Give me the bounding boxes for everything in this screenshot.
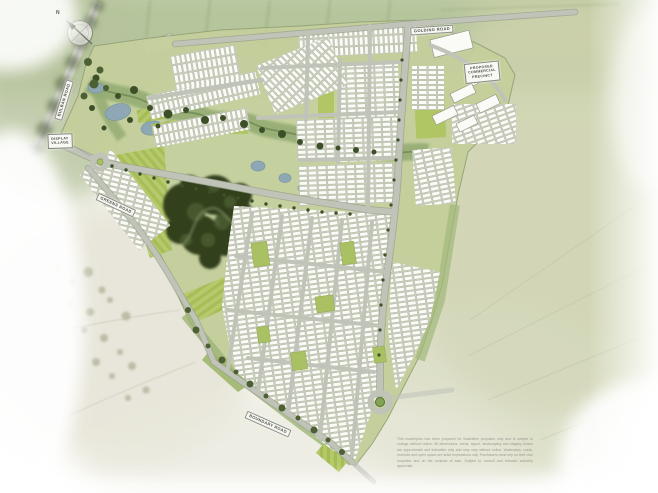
masterplan-art — [0, 0, 658, 493]
roundabout-west — [93, 155, 107, 169]
roundabout-south — [371, 393, 390, 412]
masterplan-canvas: N GOLDING ROAD BULBAN ROAD GREENS ROAD B… — [0, 0, 658, 493]
